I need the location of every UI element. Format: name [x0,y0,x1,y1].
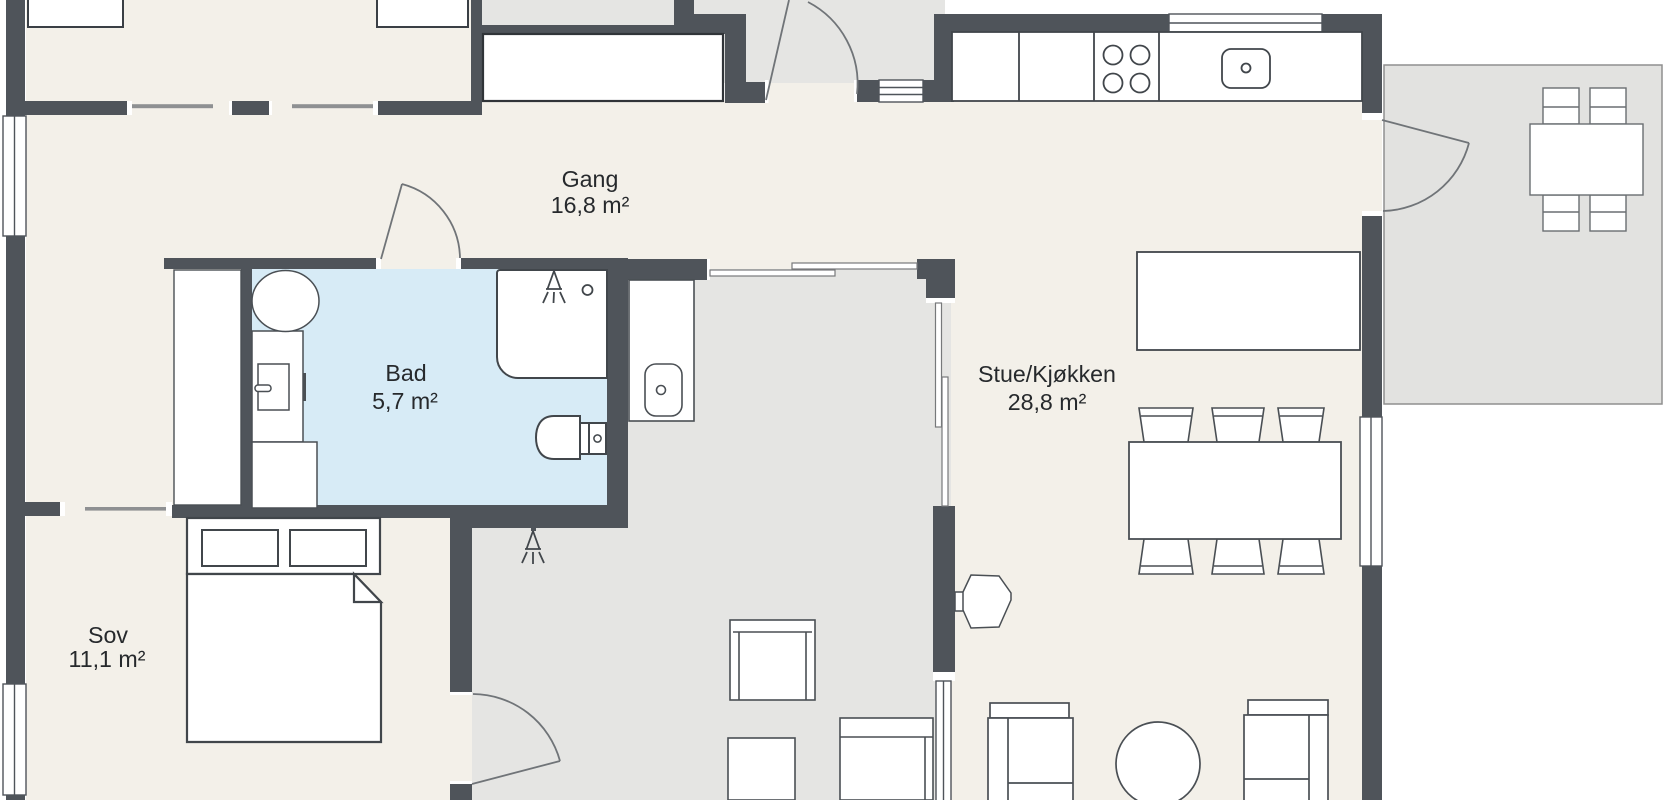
svg-text:Gang: Gang [562,166,619,192]
svg-text:5,7 m²: 5,7 m² [372,388,438,414]
svg-text:Bad: Bad [385,360,426,386]
svg-text:28,8 m²: 28,8 m² [1008,389,1087,415]
svg-text:16,8 m²: 16,8 m² [551,192,630,218]
svg-text:Stue/Kjøkken: Stue/Kjøkken [978,361,1116,387]
svg-text:11,1 m²: 11,1 m² [69,646,146,672]
svg-text:Sov: Sov [88,622,128,648]
